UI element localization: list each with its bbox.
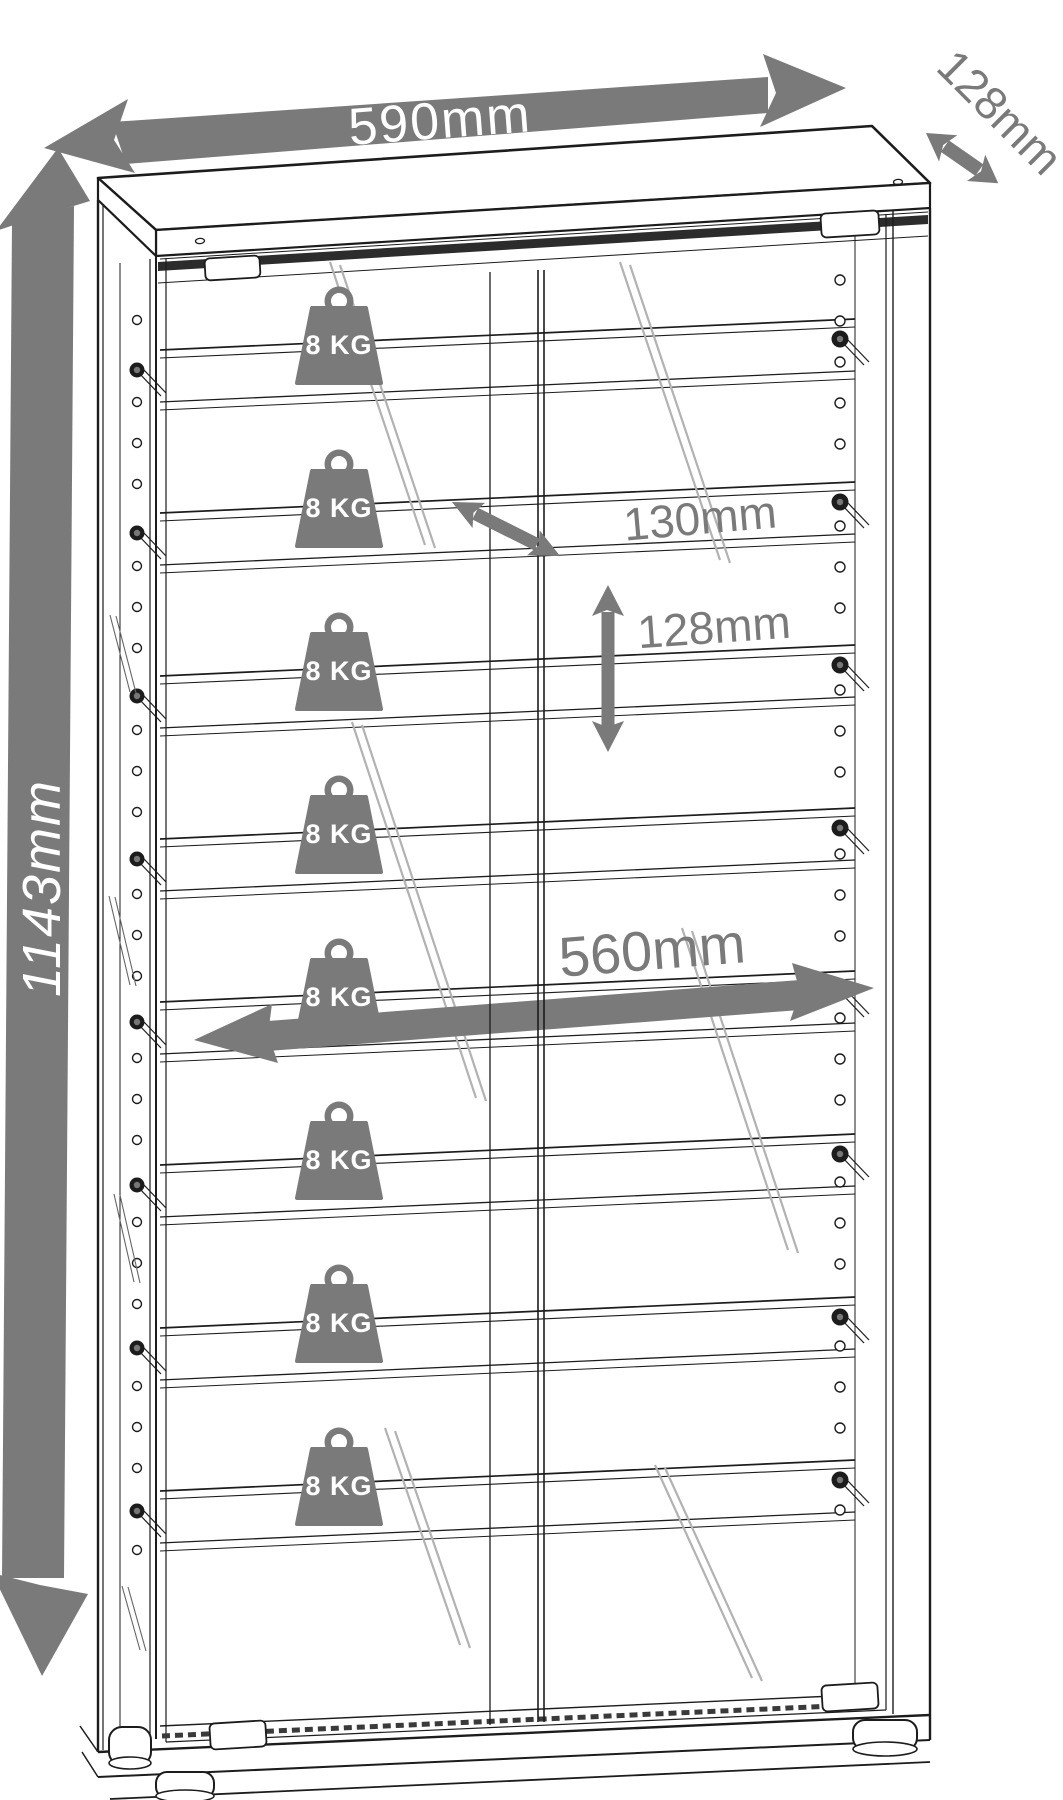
shelf-pin-hole — [133, 808, 142, 817]
shelf-pin-hole — [835, 849, 845, 859]
hinge-bottom-left — [209, 1720, 266, 1749]
shelf-pin-hole — [835, 275, 845, 285]
shelf-pin-hole — [835, 316, 845, 326]
shelf-pin-hole — [133, 480, 142, 489]
load-capacity-label: 8 KG — [305, 819, 372, 849]
load-capacity-label: 8 KG — [305, 1145, 372, 1175]
shelf-pin-hole — [133, 603, 142, 612]
cabinet-dimension-diagram: 590mm 1143mm 128mm 130mm 128mm 560mm 8 K… — [0, 0, 1063, 1800]
load-capacity-label: 8 KG — [305, 982, 372, 1012]
shelf-spacing-label: 128mm — [636, 596, 793, 659]
load-capacity-label: 8 KG — [305, 330, 372, 360]
shelf-pin-hole — [133, 1382, 142, 1391]
overall-height-label: 1143mm — [12, 779, 72, 997]
diagram-canvas: 590mm 1143mm 128mm 130mm 128mm 560mm 8 K… — [0, 0, 1063, 1800]
shelf-pin-hole — [133, 1423, 142, 1432]
load-capacity-label: 8 KG — [305, 1471, 372, 1501]
shelf-pin-hole — [835, 1013, 845, 1023]
hinge-top-left — [204, 255, 260, 280]
shelf-pin-hole — [835, 1095, 845, 1105]
shelf-pin-hole — [835, 1423, 845, 1433]
shelf-pin-hole — [835, 1505, 845, 1515]
shelf-pin-hole — [133, 1464, 142, 1473]
hinge-bottom-right — [821, 1682, 878, 1711]
shelf-pin-hole — [133, 1546, 142, 1555]
hinge-top-right — [820, 210, 879, 237]
shelf-pin-hole — [133, 439, 142, 448]
shelf-pin-hole — [835, 1054, 845, 1064]
foot-front-left — [156, 1772, 214, 1800]
shelf-pin-hole — [133, 1259, 142, 1268]
shelf-pin-hole — [133, 1054, 142, 1063]
shelf-pin-hole — [835, 603, 845, 613]
shelf-pin-hole — [835, 1382, 845, 1392]
shelf-pin-hole — [835, 726, 845, 736]
shelf-pin-hole — [133, 1136, 142, 1145]
shelf-pin-hole — [133, 890, 142, 899]
shelf-pin-hole — [835, 685, 845, 695]
shelf-pin-hole — [133, 1218, 142, 1227]
shelf-pin-hole — [835, 1341, 845, 1351]
shelf-pin-hole — [835, 398, 845, 408]
shelf-pin-hole — [835, 357, 845, 367]
shelf-pin-hole — [835, 562, 845, 572]
shelf-pin-hole — [835, 439, 845, 449]
shelf-pin-hole — [835, 1259, 845, 1269]
shelf-pin-hole — [835, 767, 845, 777]
shelf-pin-hole — [133, 1095, 142, 1104]
shelf-pin-hole — [133, 398, 142, 407]
shelf-pin-hole — [133, 644, 142, 653]
shelf-pin-hole — [133, 931, 142, 940]
shelf-pin-hole — [133, 562, 142, 571]
shelf-pin-hole — [835, 890, 845, 900]
foot-back-left — [109, 1727, 151, 1769]
shelf-spacing-arrow-shaft — [602, 612, 615, 730]
shelf-pin-hole — [133, 726, 142, 735]
shelf-pin-hole — [835, 521, 845, 531]
shelf-pin-hole — [133, 767, 142, 776]
shelf-pin-hole — [133, 316, 142, 325]
load-capacity-label: 8 KG — [305, 1308, 372, 1338]
foot-front-right — [853, 1720, 917, 1756]
shelf-pin-hole — [835, 1177, 845, 1187]
shelf-pin-hole — [133, 1300, 142, 1309]
shelf-pin-hole — [835, 931, 845, 941]
shelf-pin-hole — [835, 1218, 845, 1228]
load-capacity-label: 8 KG — [305, 493, 372, 523]
load-capacity-label: 8 KG — [305, 656, 372, 686]
